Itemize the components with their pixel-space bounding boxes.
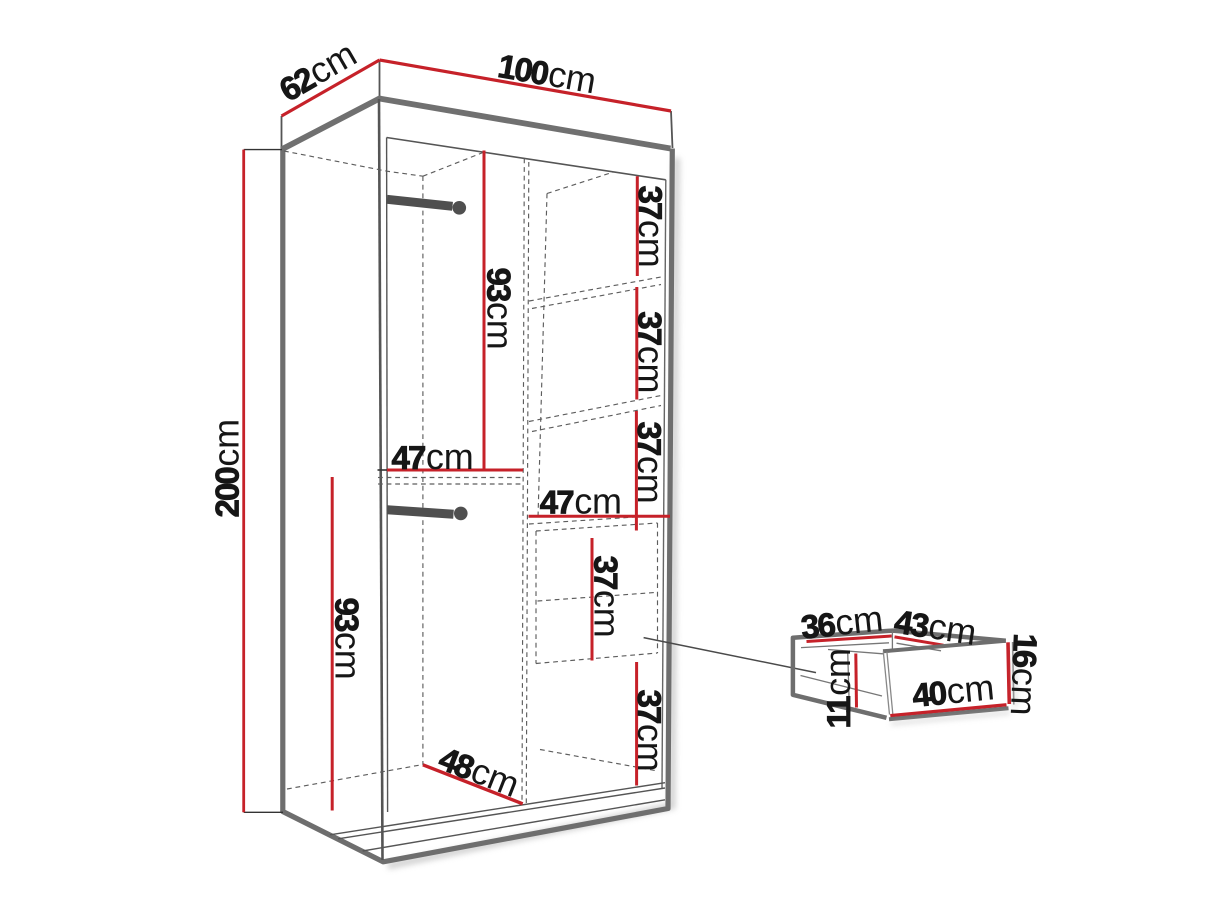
svg-text:47cm: 47cm bbox=[392, 436, 474, 477]
svg-text:36cm: 36cm bbox=[799, 597, 885, 646]
svg-text:16cm: 16cm bbox=[1003, 633, 1048, 717]
svg-text:11cm: 11cm bbox=[817, 648, 858, 728]
svg-text:37cm: 37cm bbox=[630, 690, 671, 772]
svg-text:93cm: 93cm bbox=[327, 598, 368, 680]
svg-text:37cm: 37cm bbox=[630, 311, 671, 393]
svg-text:62cm: 62cm bbox=[272, 33, 364, 110]
svg-text:37cm: 37cm bbox=[630, 422, 671, 504]
svg-text:48cm: 48cm bbox=[434, 737, 525, 805]
svg-text:37cm: 37cm bbox=[586, 556, 627, 638]
svg-text:200cm: 200cm bbox=[206, 419, 247, 517]
svg-text:100cm: 100cm bbox=[495, 44, 599, 101]
svg-text:47cm: 47cm bbox=[540, 481, 622, 522]
svg-text:37cm: 37cm bbox=[631, 186, 672, 268]
svg-text:93cm: 93cm bbox=[479, 268, 520, 350]
svg-text:40cm: 40cm bbox=[910, 666, 996, 715]
